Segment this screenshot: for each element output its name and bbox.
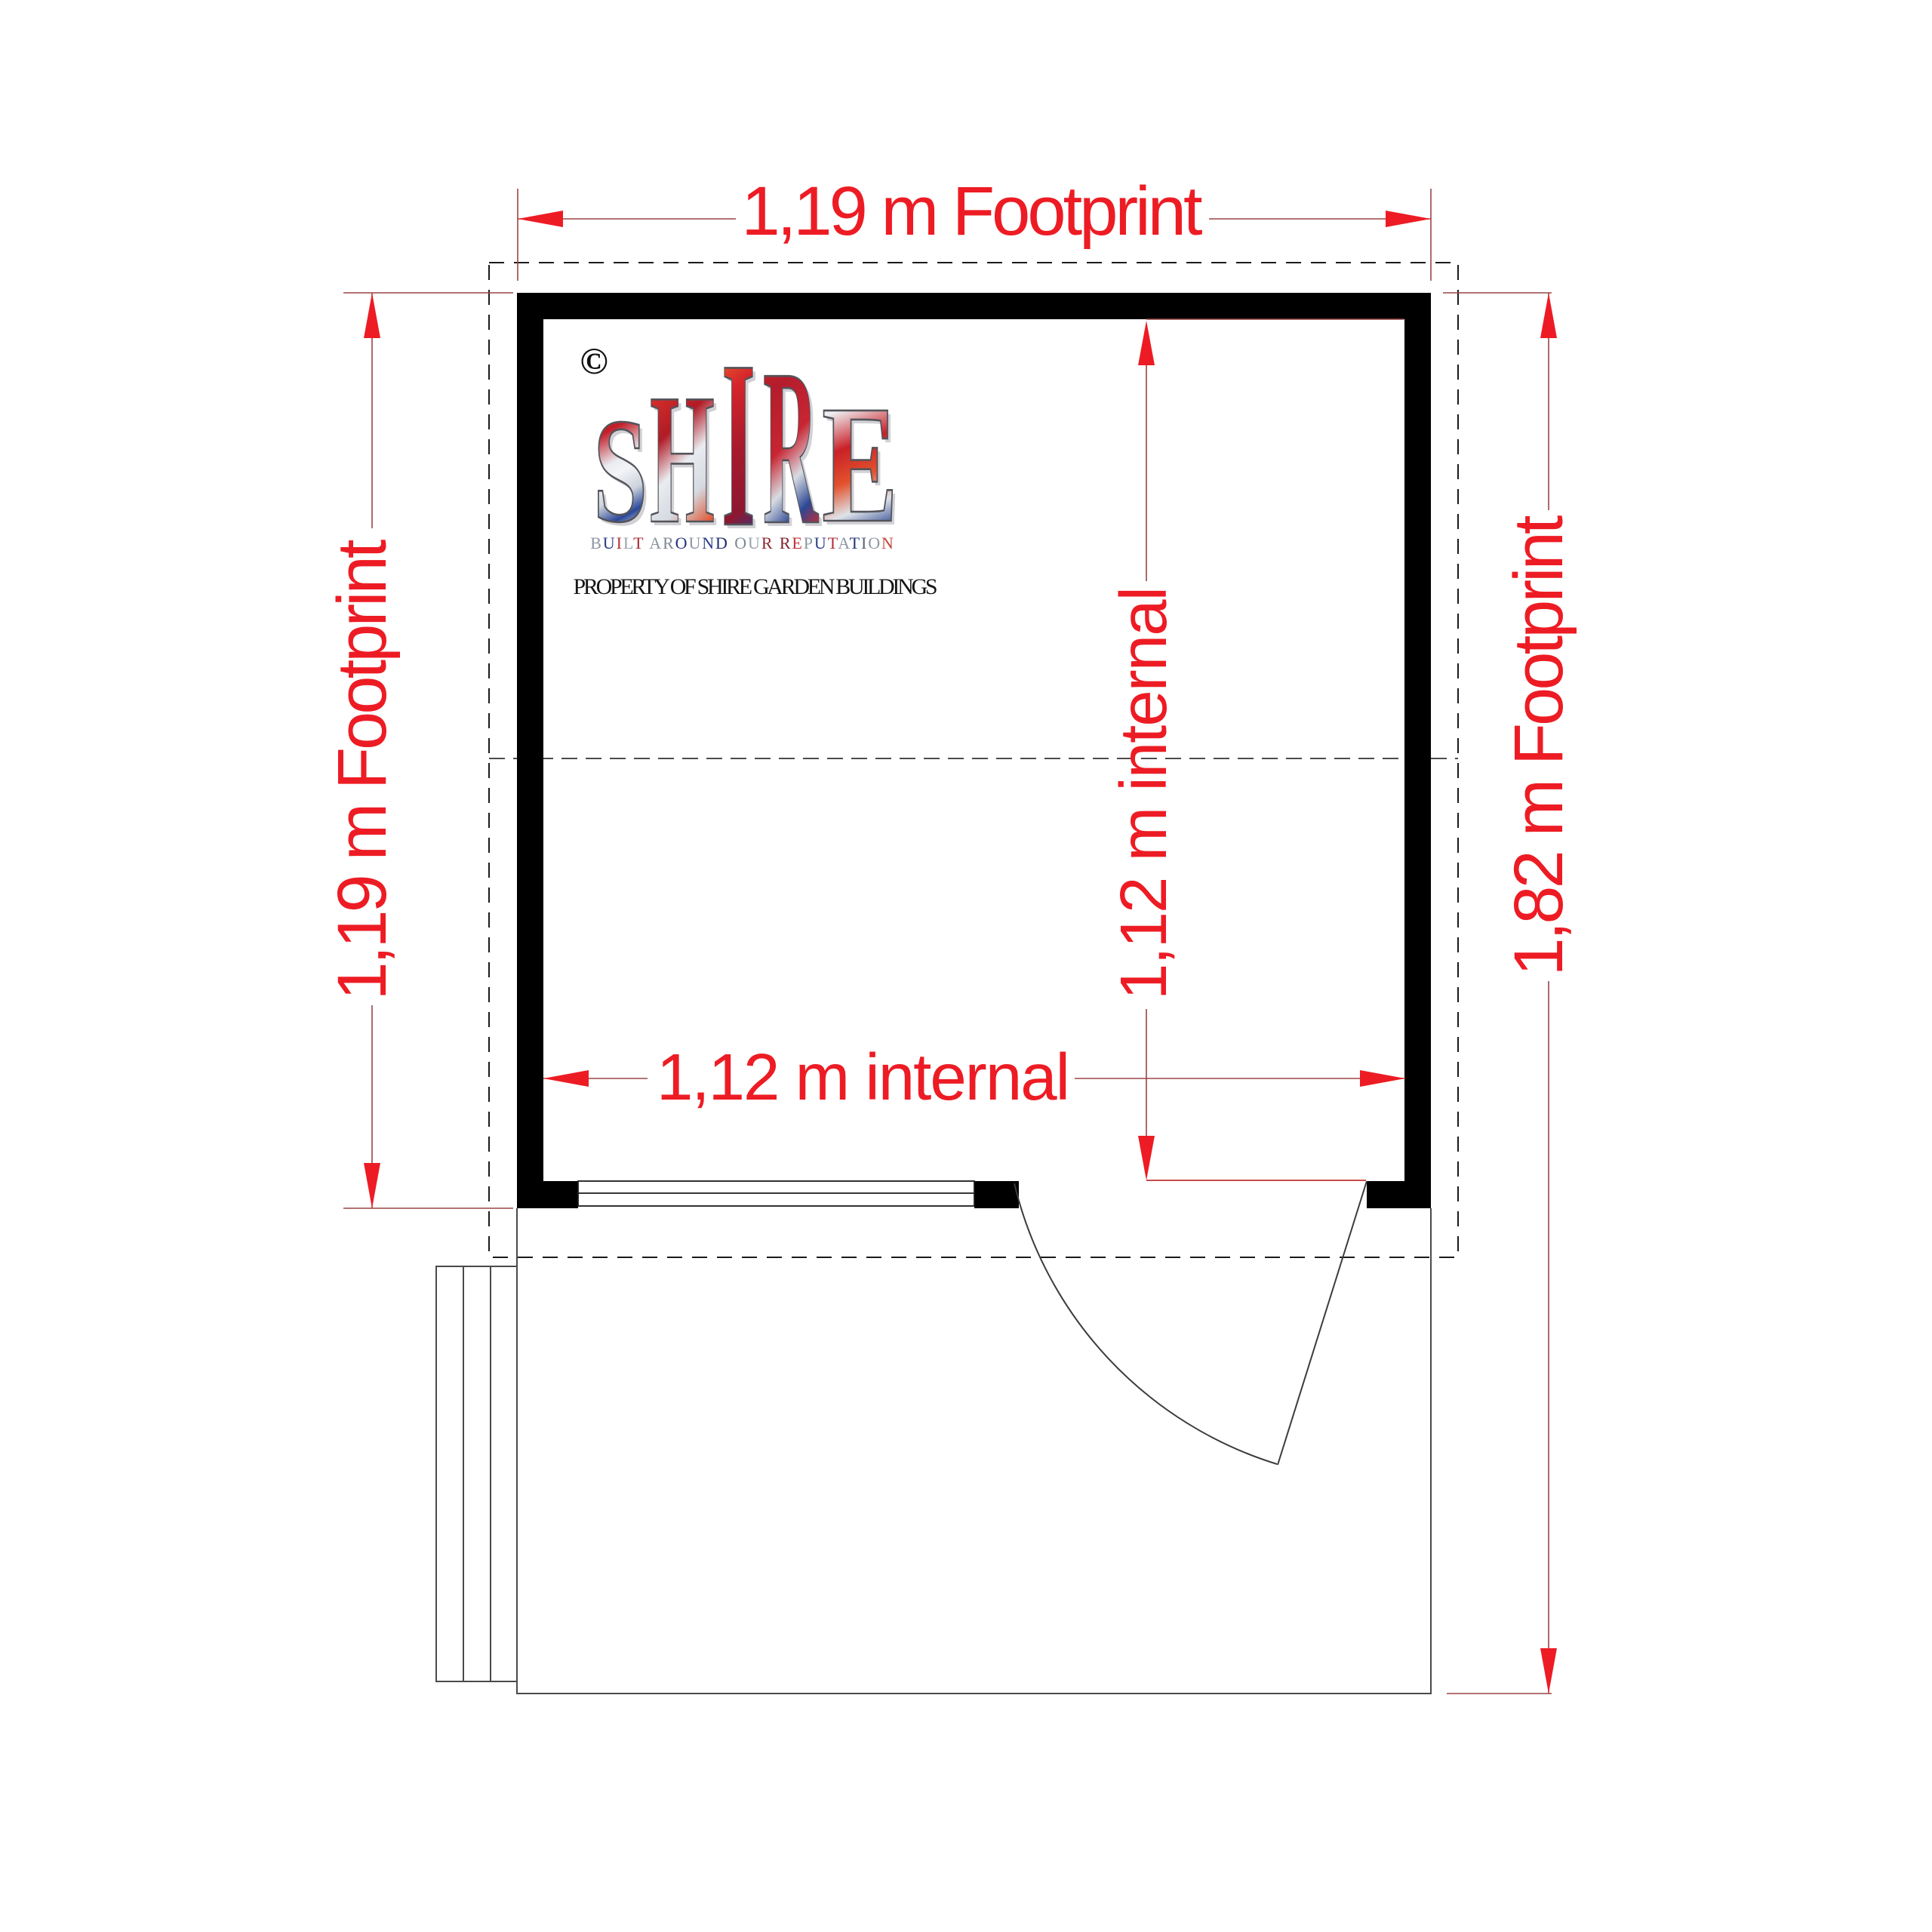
svg-text:E: E — [822, 371, 898, 558]
svg-text:1,19 m Footprint: 1,19 m Footprint — [742, 173, 1203, 250]
svg-text:1,19 m Footprint: 1,19 m Footprint — [324, 540, 401, 1001]
svg-text:BUILT AROUND OUR REPUTATION: BUILT AROUND OUR REPUTATION — [590, 534, 895, 552]
svg-text:PROPERTY OF SHIRE GARDEN BUILD: PROPERTY OF SHIRE GARDEN BUILDINGS — [574, 574, 938, 599]
svg-text:©: © — [580, 340, 608, 382]
svg-text:S: S — [593, 388, 648, 553]
svg-text:1,12 m internal: 1,12 m internal — [657, 1041, 1070, 1114]
svg-text:H: H — [650, 356, 715, 562]
svg-text:1,12 m internal: 1,12 m internal — [1107, 586, 1180, 1000]
svg-text:1,82 m Footprint: 1,82 m Footprint — [1500, 515, 1577, 977]
